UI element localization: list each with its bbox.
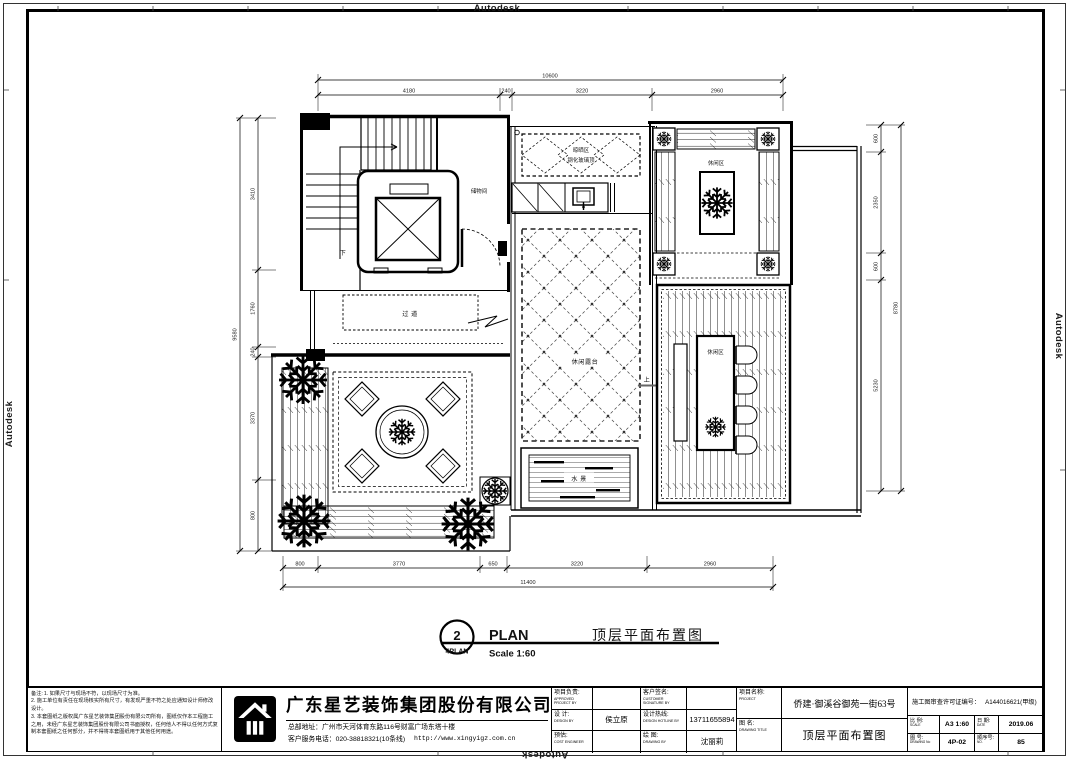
storage-door [462, 229, 507, 267]
elevator [358, 171, 458, 273]
note-2: 2. 施工单位有责任在现场核实所有尺寸，有发现严重不符之处应通知设计师修改设计。 [31, 698, 218, 714]
project-name-value: 侨建·御溪谷御苑一街63号 [782, 688, 907, 718]
field-approved-by: 项目负责:APPROVED PROJECT BY [552, 688, 593, 710]
leisure-room-top [653, 128, 779, 278]
label-skylight1: 晾晒区 [573, 146, 590, 154]
bench [674, 344, 687, 441]
field-customer-signature: 客户签名:CUSTOMER SIGNATURE BY [641, 688, 687, 710]
dim: 5230 [874, 379, 880, 391]
company-name: 广东星艺装饰集团股份有限公司 [286, 692, 548, 721]
drawing-no-value: 4P-02 [940, 734, 975, 752]
dim: 800 [295, 562, 304, 568]
meta-block: 施工图审查许可证编号： A144016621(甲级) 比 例:SCALE A3 … [908, 688, 1043, 751]
dim: 240 [251, 347, 257, 356]
dim: 3410 [251, 188, 257, 200]
notes: 备注:1. 如果尺寸与现场不符，以现场尺寸为准。 2. 施工单位有责任在现场核实… [28, 688, 222, 751]
value-design-by: 侯立原 [593, 710, 641, 732]
field-project-name: 项目名称:PROJECT [737, 688, 782, 718]
dim: 800 [251, 511, 257, 520]
project-block: 项目名称:PROJECT 侨建·御溪谷御苑一街63号 图 名:DRAWING T… [737, 688, 908, 751]
company-website: http://www.xingyigz.com.cn [414, 735, 515, 742]
label-water: 水 景 [571, 475, 587, 483]
drawing-title-row: 图 名:DRAWING TITLE 顶层平面布置图 [737, 719, 907, 752]
value-drawing-by: 沈丽莉 [687, 731, 737, 753]
plan-number: 2 [453, 628, 460, 643]
date-value: 2019.06 [999, 716, 1043, 734]
note-3: 3. 本套图纸之版权属广东星艺装饰集团股份有限公司所有，图纸仅作本工程施工之用，… [31, 714, 218, 737]
field-design-by: 设 计:DESIGN BY [552, 710, 593, 732]
floorplan-svg: Autodesk Autodesk Autodesk Autodesk [0, 0, 1069, 759]
chair [426, 449, 460, 483]
dim: 3220 [571, 562, 583, 568]
label-leisure-right: 休闲区 [707, 348, 724, 356]
plant-icon [278, 495, 331, 548]
dim: 240 [501, 89, 510, 95]
label-down: 下 [340, 250, 347, 257]
dim: 2960 [704, 562, 716, 568]
dim: 4180 [403, 89, 415, 95]
dim: 600 [874, 134, 880, 143]
chair [345, 449, 379, 483]
drawing-sheet: Autodesk Autodesk Autodesk Autodesk [0, 0, 1069, 759]
watermark-left: Autodesk [4, 400, 15, 447]
dim-top-total: 10600 [542, 74, 558, 80]
value-design-hotline: 13711655894 [687, 710, 737, 732]
plan-sheet: 4PLAN [446, 649, 469, 656]
project-row: 项目名称:PROJECT 侨建·御溪谷御苑一街63号 [737, 688, 907, 719]
field-date: 日 期:DATE [975, 716, 999, 734]
dim-right-total: 8780 [894, 302, 900, 314]
company-logo-icon [234, 696, 276, 742]
license-row: 施工图审查许可证编号： A144016621(甲级) [908, 688, 1042, 716]
plant-icon [279, 356, 327, 404]
label-up: 上 [644, 376, 651, 384]
leisure-terrace [522, 229, 663, 441]
dim: 3220 [576, 89, 588, 95]
label-leisure-top: 休闲区 [708, 159, 725, 167]
dim-bottom-total: 11400 [520, 580, 535, 586]
leisure-room-right [657, 285, 790, 503]
meta-grid: 比 例:SCALE A3 1:60 日 期:DATE 2019.06 图 号:D… [908, 716, 1042, 751]
field-scale: 比 例:SCALE [908, 716, 940, 734]
license-label: 施工图审查许可证编号： [912, 697, 980, 706]
titleblock: 备注:1. 如果尺寸与现场不符，以现场尺寸为准。 2. 施工单位有责任在现场核实… [28, 686, 1043, 751]
chair [736, 376, 757, 394]
label-storage: 储物间 [471, 187, 487, 195]
drawing-title-value: 顶层平面布置图 [782, 719, 907, 752]
field-drawing-no: 图 号:DRAWING No [908, 734, 940, 752]
chair [736, 406, 757, 424]
value-approved-by [593, 688, 641, 710]
field-seq-no: 顺序号:NO. [975, 734, 999, 752]
company-block: 广东星艺装饰集团股份有限公司 总部地址：广州市天河体育东路116号财富广场东塔十… [222, 688, 552, 751]
dim: 3370 [251, 412, 257, 424]
watermark-top: Autodesk [474, 3, 521, 14]
dim: 650 [488, 562, 497, 568]
field-drawing-by: 绘 图:DRAWING BY [641, 731, 687, 753]
dim-left-total: 9580 [233, 328, 239, 340]
laundry-cabinets [512, 183, 652, 214]
chair [736, 346, 757, 364]
plan-scale: Scale 1:60 [489, 649, 535, 660]
plant-icon [442, 498, 495, 551]
plan-label: PLAN [489, 628, 528, 644]
dim: 3770 [393, 562, 405, 568]
watermark-right: Autodesk [1053, 313, 1064, 360]
personnel-grid: 项目负责:APPROVED PROJECT BY 客户签名:CUSTOMER S… [552, 688, 737, 751]
chair [426, 382, 460, 416]
dim: 600 [874, 262, 880, 271]
label-terrace: 休闲露台 [572, 358, 599, 366]
company-address: 总部地址：广州市天河体育东路116号财富广场东塔十楼 [288, 721, 455, 731]
license-number: A144016621(甲级) [985, 697, 1037, 706]
dim: 2350 [874, 196, 880, 208]
scale-value: A3 1:60 [940, 716, 975, 734]
chair [736, 436, 757, 454]
label-corridor: 过 道 [402, 310, 418, 318]
company-phone: 客户服务电话：020-38818321(10条线) [288, 733, 405, 743]
value-customer-signature [687, 688, 737, 710]
value-cost-engineer [593, 731, 641, 753]
notes-label: 备注: [31, 691, 43, 697]
plan-name: 顶层平面布置图 [592, 628, 704, 644]
dim: 2960 [711, 89, 723, 95]
seq-no-value: 85 [999, 734, 1043, 752]
field-design-hotline: 设计热线:DESIGN HOTLINE BY [641, 710, 687, 732]
plan-title: 2 4PLAN PLAN Scale 1:60 顶层平面布置图 [441, 621, 720, 660]
field-cost-engineer: 预估:COST ENGINEER [552, 731, 593, 753]
note-1: 1. 如果尺寸与现场不符，以现场尺寸为准。 [44, 691, 143, 697]
dim: 1760 [251, 302, 257, 314]
label-skylight2: 钢化玻璃顶 [568, 156, 596, 164]
chair [345, 382, 379, 416]
field-drawing-title: 图 名:DRAWING TITLE [737, 719, 782, 752]
